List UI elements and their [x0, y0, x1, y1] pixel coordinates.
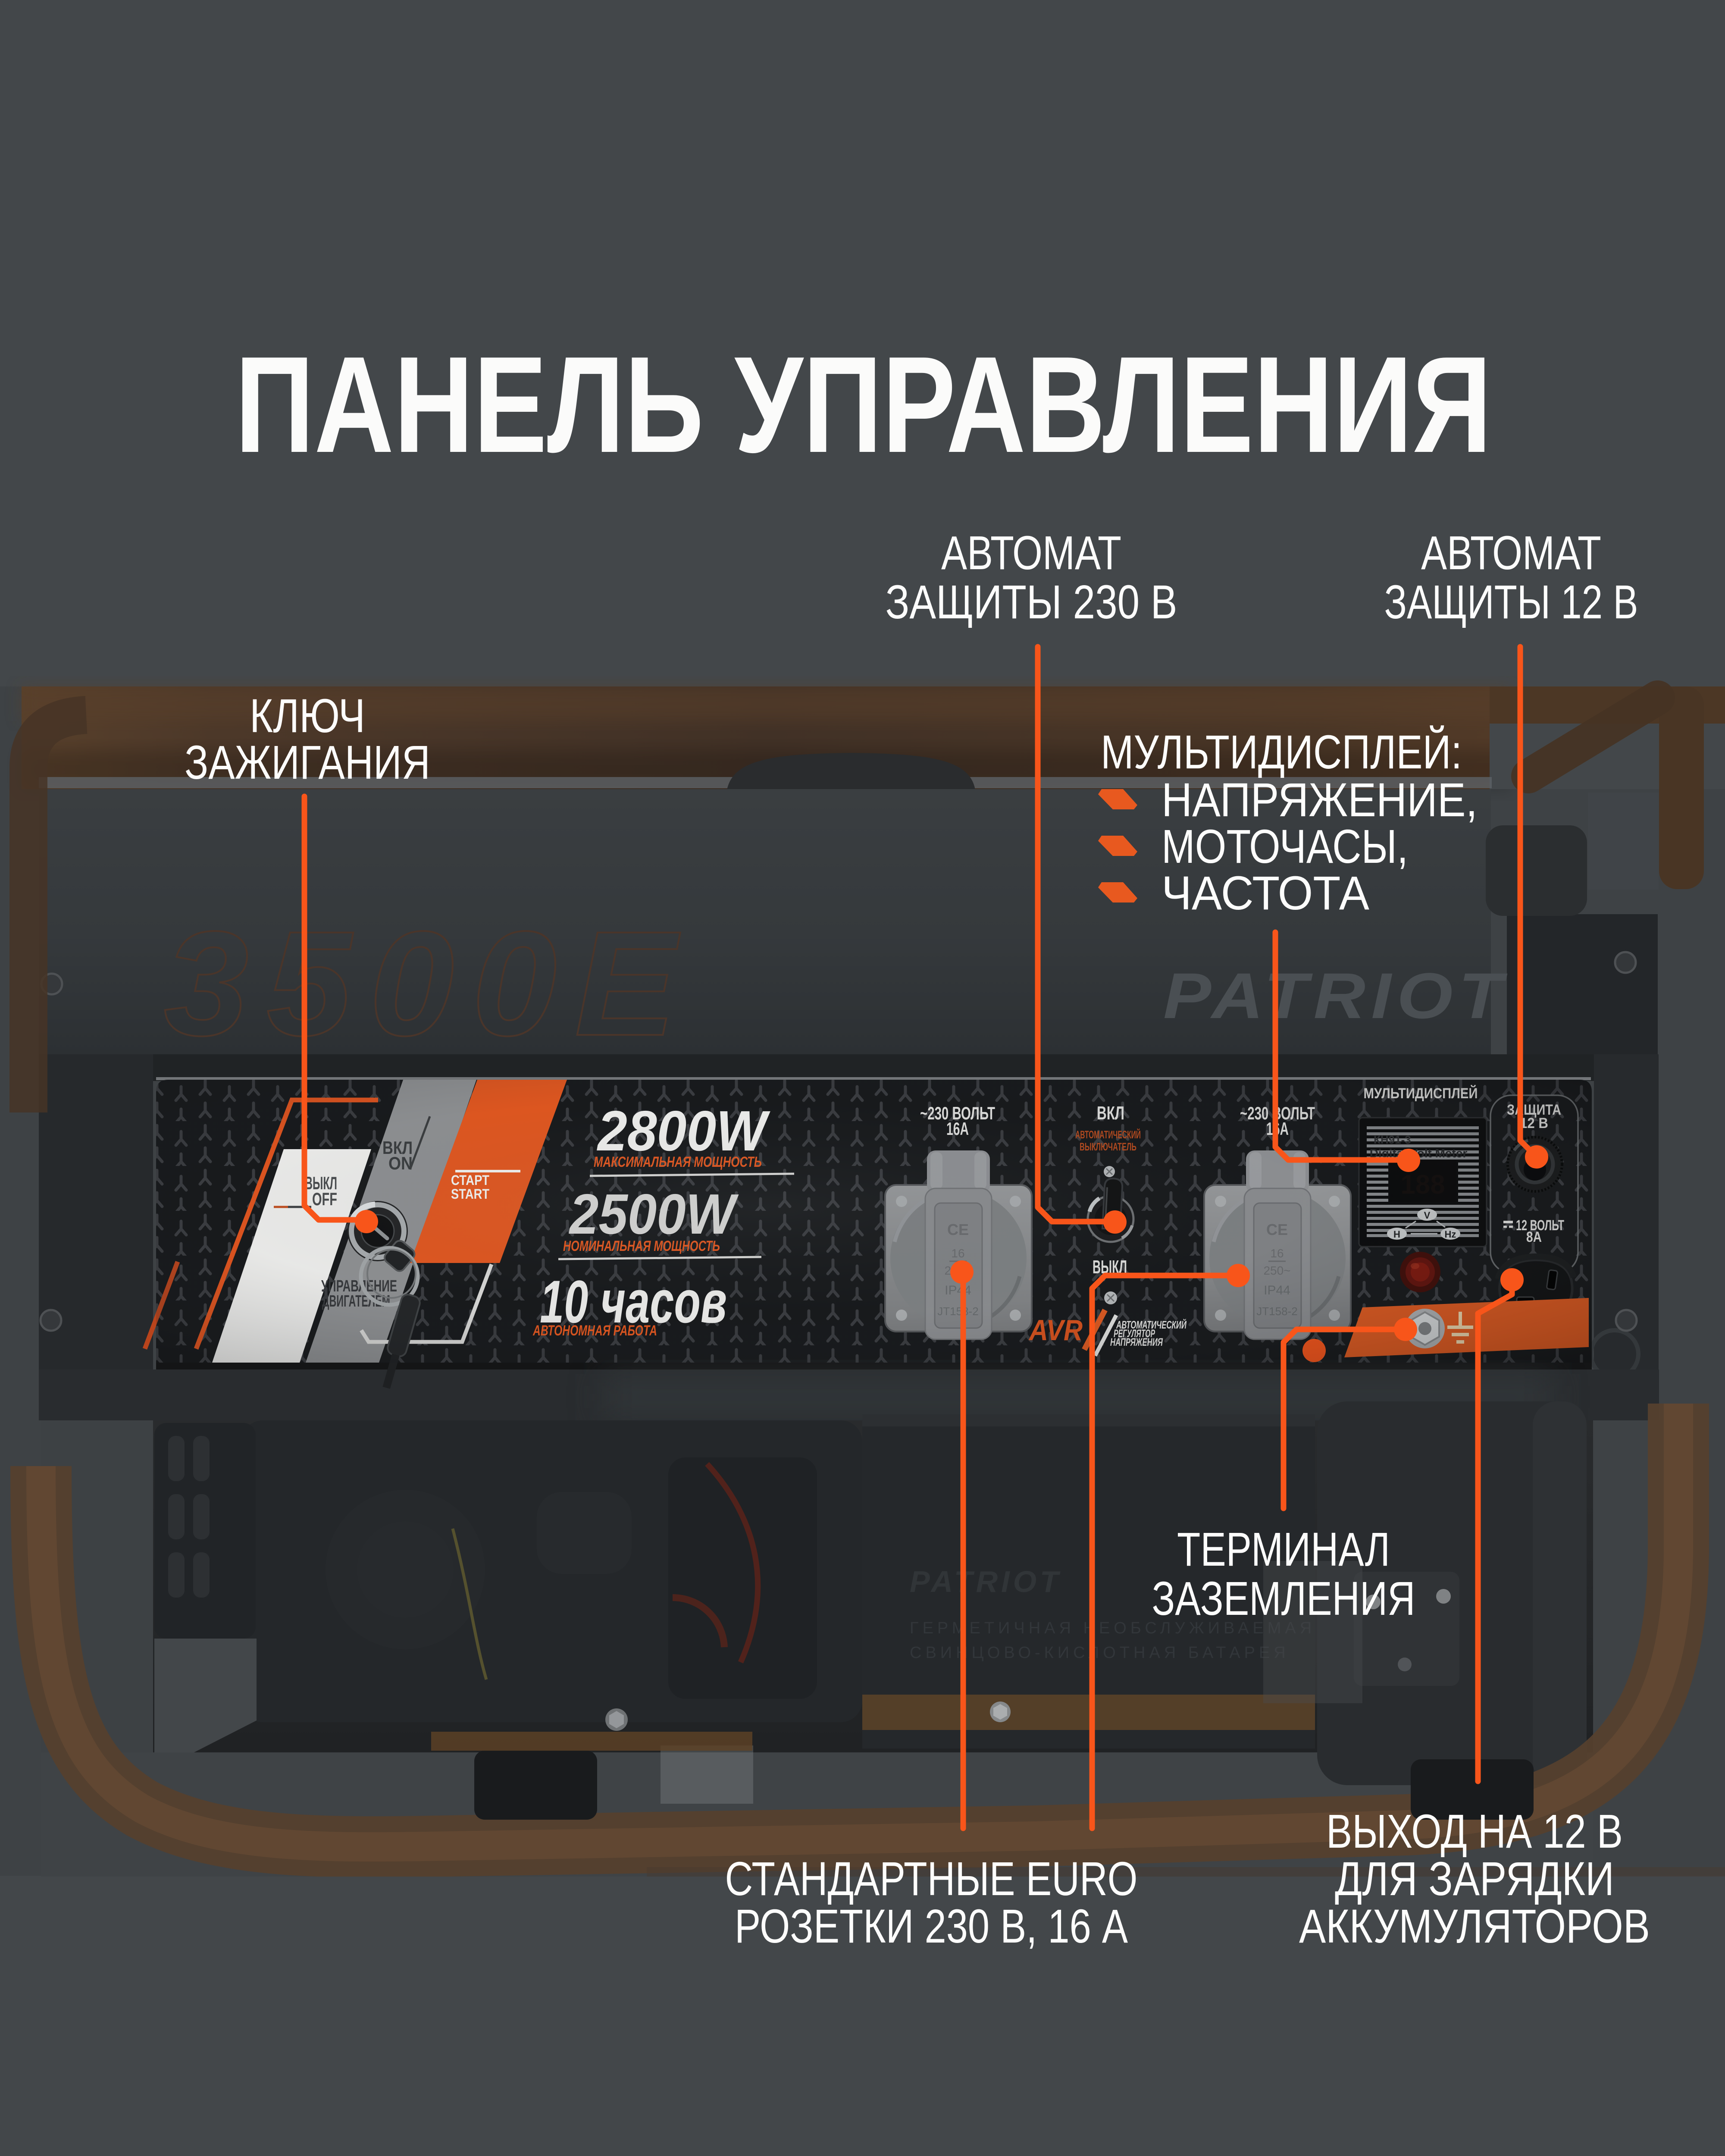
svg-text:МУЛЬТИДИСПЛЕЙ:: МУЛЬТИДИСПЛЕЙ:: [1101, 726, 1462, 779]
svg-text:СТАНДАРТНЫЕ EURO: СТАНДАРТНЫЕ EURO: [725, 1852, 1138, 1905]
svg-text:АВТОМАТ: АВТОМАТ: [1421, 526, 1601, 580]
svg-text:ЧАСТОТА: ЧАСТОТА: [1161, 867, 1370, 920]
svg-text:PATRIOT: PATRIOT: [1163, 959, 1508, 1032]
svg-text:ВЫХОД НА 12 В: ВЫХОД НА 12 В: [1326, 1805, 1623, 1858]
svg-text:ЗАЗЕМЛЕНИЯ: ЗАЗЕМЛЕНИЯ: [1152, 1572, 1415, 1625]
svg-text:АВТОМАТ: АВТОМАТ: [941, 526, 1121, 580]
svg-text:АККУМУЛЯТОРОВ: АККУМУЛЯТОРОВ: [1299, 1900, 1650, 1953]
svg-text:СВИНЦОВО-КИСЛОТНАЯ БАТАРЕЯ: СВИНЦОВО-КИСЛОТНАЯ БАТАРЕЯ: [910, 1644, 1290, 1662]
svg-text:PATRIOT: PATRIOT: [910, 1565, 1062, 1598]
svg-text:ЗАЖИГАНИЯ: ЗАЖИГАНИЯ: [185, 736, 430, 789]
svg-text:НАПРЯЖЕНИЕ,: НАПРЯЖЕНИЕ,: [1161, 774, 1478, 827]
svg-text:ДЛЯ ЗАРЯДКИ: ДЛЯ ЗАРЯДКИ: [1335, 1852, 1614, 1905]
svg-text:ТЕРМИНАЛ: ТЕРМИНАЛ: [1177, 1523, 1390, 1576]
svg-text:ЗАЩИТЫ 230 В: ЗАЩИТЫ 230 В: [886, 576, 1177, 629]
svg-text:3500E: 3500E: [164, 901, 694, 1067]
svg-text:ПАНЕЛЬ УПРАВЛЕНИЯ: ПАНЕЛЬ УПРАВЛЕНИЯ: [235, 328, 1492, 481]
svg-text:РОЗЕТКИ 230 В, 16 А: РОЗЕТКИ 230 В, 16 А: [735, 1900, 1128, 1953]
svg-text:МОТОЧАСЫ,: МОТОЧАСЫ,: [1161, 820, 1408, 873]
svg-text:ЗАЩИТЫ 12 В: ЗАЩИТЫ 12 В: [1384, 576, 1638, 629]
svg-text:КЛЮЧ: КЛЮЧ: [250, 689, 365, 743]
